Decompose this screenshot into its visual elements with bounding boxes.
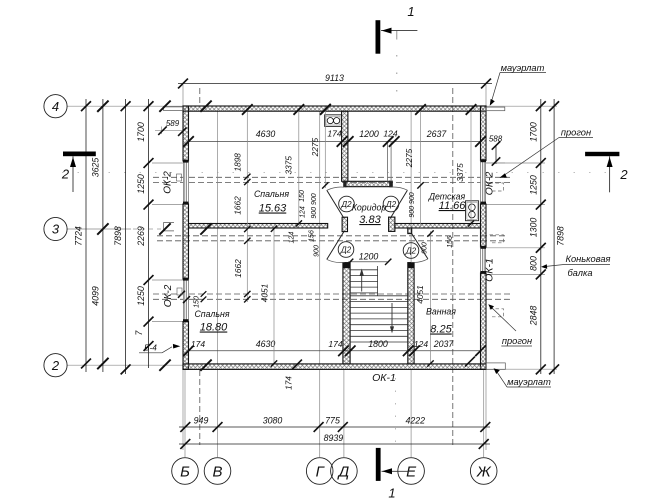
svg-text:Коридор: Коридор bbox=[352, 203, 387, 213]
svg-text:Б: Б bbox=[180, 463, 190, 480]
svg-text:1700: 1700 bbox=[528, 122, 538, 142]
svg-text:1300: 1300 bbox=[528, 218, 538, 238]
svg-text:900: 900 bbox=[422, 242, 429, 254]
svg-text:15.63: 15.63 bbox=[259, 203, 287, 215]
svg-text:156: 156 bbox=[309, 230, 316, 242]
svg-text:2: 2 bbox=[61, 167, 70, 182]
svg-text:4099: 4099 bbox=[90, 286, 100, 306]
svg-text:800: 800 bbox=[528, 256, 538, 271]
svg-text:1898: 1898 bbox=[232, 153, 242, 172]
svg-text:18.80: 18.80 bbox=[200, 322, 228, 334]
svg-text:1: 1 bbox=[407, 4, 414, 19]
svg-text:949: 949 bbox=[194, 416, 209, 426]
svg-text:124: 124 bbox=[383, 128, 397, 138]
svg-text:Д2: Д2 bbox=[385, 200, 397, 209]
svg-text:900: 900 bbox=[313, 245, 320, 257]
svg-text:150: 150 bbox=[194, 296, 201, 308]
svg-text:589: 589 bbox=[166, 119, 180, 128]
svg-text:Б-4: Б-4 bbox=[144, 343, 157, 353]
svg-text:Д2: Д2 bbox=[340, 245, 352, 254]
svg-text:174: 174 bbox=[284, 376, 294, 390]
svg-text:8939: 8939 bbox=[324, 433, 344, 443]
svg-text:7724: 7724 bbox=[74, 226, 84, 246]
svg-text:Спальня: Спальня bbox=[254, 189, 289, 199]
svg-text:1250: 1250 bbox=[136, 174, 146, 194]
svg-text:ОК-2: ОК-2 bbox=[163, 171, 174, 194]
svg-text:174: 174 bbox=[328, 339, 342, 349]
svg-text:1662: 1662 bbox=[233, 259, 243, 278]
svg-text:900 900: 900 900 bbox=[409, 192, 416, 217]
svg-text:1250: 1250 bbox=[528, 175, 538, 195]
svg-text:Ж: Ж bbox=[476, 463, 492, 480]
svg-text:Спальня: Спальня bbox=[194, 309, 229, 319]
svg-text:4630: 4630 bbox=[256, 339, 276, 349]
svg-text:1800: 1800 bbox=[368, 339, 388, 349]
svg-text:1200: 1200 bbox=[359, 252, 379, 262]
svg-text:ОК-1: ОК-1 bbox=[372, 372, 396, 384]
svg-text:2269: 2269 bbox=[136, 226, 146, 247]
svg-text:7898: 7898 bbox=[556, 226, 566, 246]
svg-text:3: 3 bbox=[52, 222, 60, 237]
svg-text:775: 775 bbox=[325, 416, 340, 426]
svg-text:В: В bbox=[212, 463, 222, 480]
svg-text:2848: 2848 bbox=[528, 306, 538, 327]
svg-text:4: 4 bbox=[52, 99, 59, 114]
svg-text:ОК-2: ОК-2 bbox=[163, 284, 174, 307]
svg-text:8.25: 8.25 bbox=[430, 324, 452, 336]
svg-text:174: 174 bbox=[191, 339, 205, 349]
svg-text:3625: 3625 bbox=[90, 158, 100, 178]
svg-text:150: 150 bbox=[299, 190, 306, 202]
svg-text:1200: 1200 bbox=[359, 129, 379, 139]
svg-text:1: 1 bbox=[388, 486, 395, 501]
svg-text:9113: 9113 bbox=[325, 73, 344, 83]
svg-text:ОК-2: ОК-2 bbox=[484, 171, 496, 195]
svg-text:3.83: 3.83 bbox=[359, 214, 381, 226]
svg-text:2: 2 bbox=[619, 167, 628, 182]
svg-text:ОК-1: ОК-1 bbox=[484, 258, 496, 282]
svg-text:3375: 3375 bbox=[455, 163, 465, 182]
svg-text:174: 174 bbox=[327, 128, 341, 138]
svg-text:4222: 4222 bbox=[406, 416, 426, 426]
svg-text:2037: 2037 bbox=[433, 339, 455, 349]
svg-text:2: 2 bbox=[51, 358, 60, 373]
svg-text:Д: Д bbox=[337, 463, 350, 480]
svg-text:мауэрлат: мауэрлат bbox=[501, 63, 545, 73]
svg-text:балка: балка bbox=[567, 268, 592, 278]
svg-text:Коньковая: Коньковая bbox=[566, 254, 611, 264]
svg-text:прогон: прогон bbox=[502, 336, 532, 346]
svg-text:прогон: прогон bbox=[561, 127, 591, 137]
svg-text:Д2: Д2 bbox=[340, 200, 352, 209]
svg-text:156: 156 bbox=[447, 236, 454, 248]
svg-text:3375: 3375 bbox=[283, 156, 293, 175]
svg-text:4630: 4630 bbox=[256, 129, 276, 139]
svg-text:2637: 2637 bbox=[426, 129, 448, 139]
svg-text:124: 124 bbox=[300, 206, 307, 218]
svg-text:124: 124 bbox=[289, 232, 296, 244]
svg-text:Ванная: Ванная bbox=[426, 307, 456, 317]
svg-text:мауэрлат: мауэрлат bbox=[507, 377, 551, 387]
svg-text:1250: 1250 bbox=[136, 286, 146, 306]
svg-text:1700: 1700 bbox=[136, 122, 146, 142]
svg-text:Д2: Д2 bbox=[405, 246, 417, 255]
svg-text:2275: 2275 bbox=[404, 148, 414, 168]
svg-text:11.66: 11.66 bbox=[439, 200, 467, 212]
svg-text:1662: 1662 bbox=[232, 196, 242, 215]
svg-text:4051: 4051 bbox=[260, 284, 270, 302]
svg-text:3080: 3080 bbox=[263, 416, 283, 426]
svg-text:7898: 7898 bbox=[113, 226, 123, 246]
svg-text:124: 124 bbox=[414, 339, 428, 349]
svg-text:900 900: 900 900 bbox=[311, 193, 318, 218]
svg-text:Е: Е bbox=[406, 463, 417, 480]
svg-text:588: 588 bbox=[489, 135, 503, 144]
svg-text:4051: 4051 bbox=[415, 285, 425, 303]
svg-text:2275: 2275 bbox=[310, 137, 320, 157]
